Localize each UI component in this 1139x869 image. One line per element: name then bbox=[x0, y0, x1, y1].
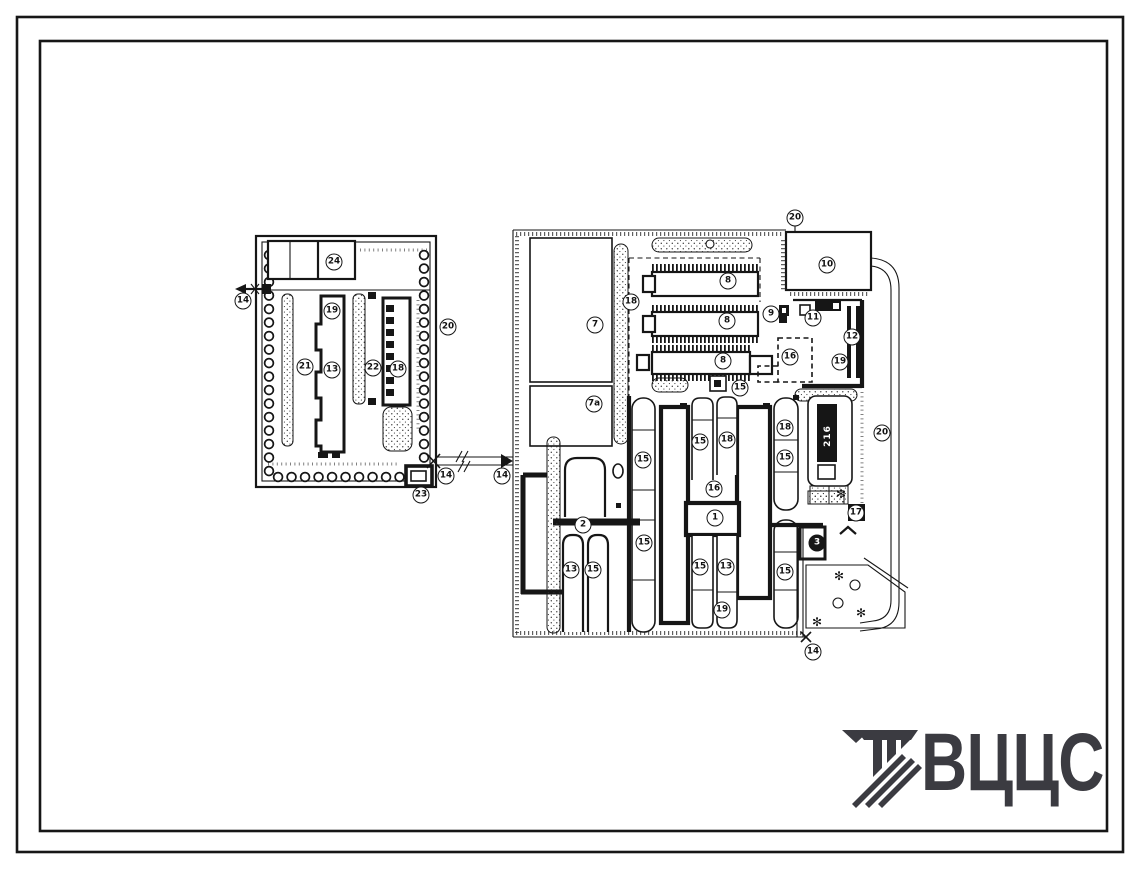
building-label: 7 bbox=[587, 317, 604, 334]
building-label: 9 bbox=[763, 306, 780, 323]
building-label: 22 bbox=[365, 360, 382, 377]
building-label: 8 bbox=[715, 353, 732, 370]
building-label: 13 bbox=[324, 362, 341, 379]
building-label: 15 bbox=[732, 380, 749, 397]
building-label: 8 bbox=[720, 273, 737, 290]
tower-label: 216 bbox=[823, 425, 833, 447]
building-label: 8 bbox=[719, 313, 736, 330]
building-label: 23 bbox=[413, 487, 430, 504]
building-label: 16 bbox=[782, 349, 799, 366]
right-compound-plan: 216 ✻ bbox=[513, 224, 908, 642]
building-label: 18 bbox=[777, 420, 794, 437]
building-label: 18 bbox=[719, 432, 736, 449]
building-label: 16 bbox=[706, 481, 723, 498]
building-label: 24 bbox=[326, 254, 343, 271]
building-label: 14 bbox=[438, 468, 455, 485]
drawing-sheet: 216 ✻ bbox=[0, 0, 1139, 869]
building-label: 15 bbox=[692, 559, 709, 576]
garden-area: ✻ ✻ ✻ bbox=[806, 558, 908, 629]
logo-text: ВЦЦС bbox=[921, 722, 1104, 804]
building-label: 15 bbox=[636, 535, 653, 552]
building-label: 18 bbox=[390, 361, 407, 378]
building-label: 7а bbox=[586, 396, 603, 413]
building-label: 19 bbox=[324, 303, 341, 320]
building-label: 14 bbox=[805, 644, 822, 661]
building-label: 10 bbox=[819, 257, 836, 274]
building-label: 20 bbox=[787, 210, 804, 227]
building-label: 15 bbox=[635, 452, 652, 469]
building-label: 15 bbox=[692, 434, 709, 451]
building-label: 3 bbox=[809, 535, 826, 552]
building-label: 12 bbox=[844, 329, 861, 346]
building-label: 17 bbox=[848, 505, 865, 522]
logo-icon bbox=[842, 730, 922, 808]
building-label: 13 bbox=[718, 559, 735, 576]
building-label: 19 bbox=[714, 602, 731, 619]
building-label: 11 bbox=[805, 310, 822, 327]
building-label: 15 bbox=[777, 564, 794, 581]
svg-text:✻: ✻ bbox=[812, 615, 822, 629]
svg-text:✻: ✻ bbox=[856, 606, 866, 620]
building-label: 21 bbox=[297, 359, 314, 376]
building-label: 14 bbox=[494, 468, 511, 485]
building-label: 20 bbox=[440, 319, 457, 336]
building-label: 19 bbox=[832, 354, 849, 371]
svg-text:✻: ✻ bbox=[834, 569, 844, 583]
building-label: 18 bbox=[623, 294, 640, 311]
building-label: 13 bbox=[563, 562, 580, 579]
building-label: 15 bbox=[777, 450, 794, 467]
building-label: 15 bbox=[585, 562, 602, 579]
building-label: 1 bbox=[707, 510, 724, 527]
building-label: 20 bbox=[874, 425, 891, 442]
building-label: 2 bbox=[575, 517, 592, 534]
building-label: 14 bbox=[235, 293, 252, 310]
